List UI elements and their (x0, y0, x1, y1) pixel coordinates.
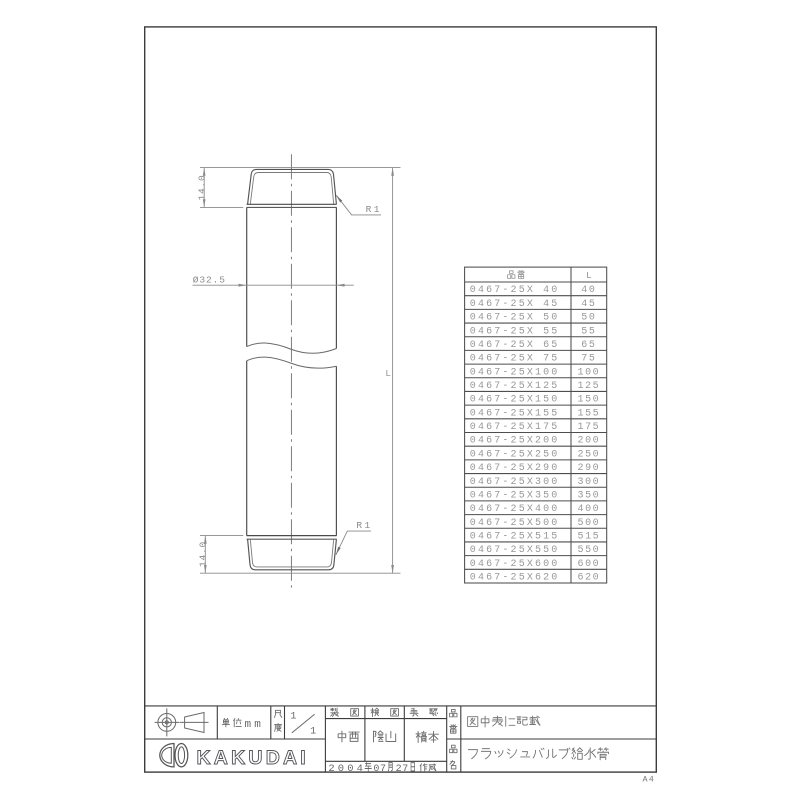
svg-text:KAKUDAI: KAKUDAI (197, 747, 308, 769)
svg-text:0467-25X600: 0467-25X600 (470, 559, 558, 570)
svg-text:300: 300 (577, 477, 600, 488)
svg-text:0467-25X 40: 0467-25X 40 (470, 285, 558, 296)
svg-text:150: 150 (577, 395, 600, 406)
svg-text:0467-25X 75: 0467-25X 75 (470, 354, 558, 365)
svg-text:620: 620 (577, 573, 600, 584)
svg-text:14.0: 14.0 (198, 541, 209, 567)
svg-text:45: 45 (581, 299, 596, 310)
svg-text:R1: R1 (356, 520, 372, 531)
svg-text:65: 65 (581, 340, 596, 351)
svg-text:125: 125 (577, 381, 600, 392)
svg-text:1: 1 (310, 726, 316, 737)
svg-text:0467-25X155: 0467-25X155 (470, 408, 558, 419)
svg-text:0467-25X 50: 0467-25X 50 (470, 313, 558, 324)
svg-text:07: 07 (373, 764, 386, 775)
svg-text:1: 1 (290, 712, 296, 723)
svg-text:Ø32.5: Ø32.5 (193, 274, 226, 285)
svg-text:0467-25X200: 0467-25X200 (470, 436, 558, 447)
svg-text:R1: R1 (366, 204, 382, 215)
svg-text:2004: 2004 (328, 763, 366, 775)
svg-text:0467-25X290: 0467-25X290 (470, 463, 558, 474)
svg-text:175: 175 (577, 422, 600, 433)
svg-text:A4: A4 (643, 774, 656, 784)
svg-text:0467-25X 55: 0467-25X 55 (470, 326, 558, 337)
svg-text:L: L (586, 270, 592, 281)
svg-text:100: 100 (577, 367, 600, 378)
svg-text:0467-25X 45: 0467-25X 45 (470, 299, 558, 310)
svg-text:250: 250 (577, 449, 600, 460)
svg-text:mm: mm (245, 719, 264, 731)
svg-text:600: 600 (577, 559, 600, 570)
svg-text:75: 75 (581, 354, 596, 365)
svg-text:0467-25X400: 0467-25X400 (470, 504, 558, 515)
svg-text:0467-25X 65: 0467-25X 65 (470, 340, 558, 351)
svg-text:0467-25X150: 0467-25X150 (470, 395, 558, 406)
svg-text:290: 290 (577, 463, 600, 474)
svg-text:0467-25X250: 0467-25X250 (470, 449, 558, 460)
svg-text:40: 40 (581, 285, 596, 296)
svg-text:400: 400 (577, 504, 600, 515)
svg-text:50: 50 (581, 313, 596, 324)
svg-text:155: 155 (577, 408, 600, 419)
svg-text:0467-25X620: 0467-25X620 (470, 573, 558, 584)
svg-text:55: 55 (581, 326, 596, 337)
svg-text:14.0: 14.0 (197, 174, 208, 200)
svg-text:0467-25X515: 0467-25X515 (470, 532, 558, 543)
svg-text:550: 550 (577, 545, 600, 556)
svg-text:L: L (385, 368, 391, 379)
svg-text:0467-25X300: 0467-25X300 (470, 477, 558, 488)
svg-text:0467-25X125: 0467-25X125 (470, 381, 558, 392)
svg-text:0467-25X175: 0467-25X175 (470, 422, 558, 433)
svg-text:0467-25X500: 0467-25X500 (470, 518, 558, 529)
svg-text:500: 500 (577, 518, 600, 529)
svg-text:515: 515 (577, 532, 600, 543)
svg-text:0467-25X100: 0467-25X100 (470, 367, 558, 378)
svg-text:0467-25X550: 0467-25X550 (470, 545, 558, 556)
svg-text:27: 27 (396, 764, 409, 775)
svg-text:350: 350 (577, 491, 600, 502)
svg-text:0467-25X350: 0467-25X350 (470, 491, 558, 502)
svg-text:200: 200 (577, 436, 600, 447)
